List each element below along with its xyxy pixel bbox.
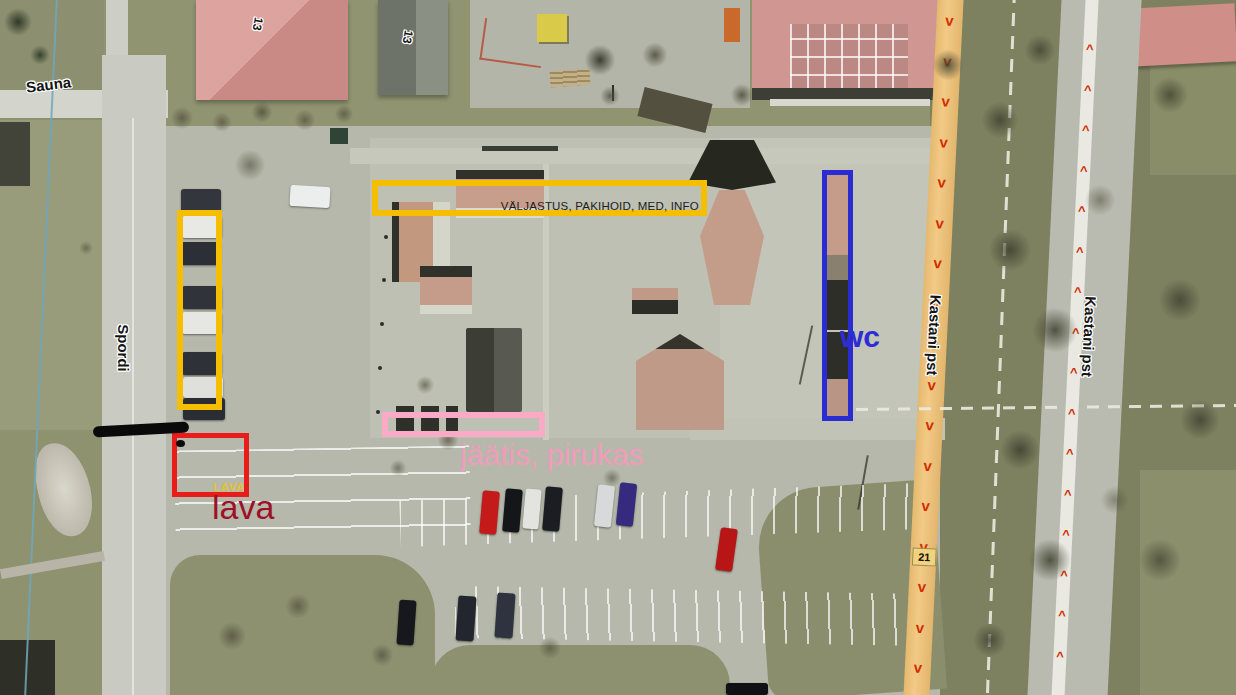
building-number-right: 13 (400, 29, 416, 45)
annotation-parking-rect (177, 210, 222, 410)
annotation-issue-label: VÄLJASTUS, PAKIHOID, MED, INFO (501, 200, 699, 212)
street-label-kastani-path: Kastani pst (924, 294, 945, 376)
annotation-food-rect (382, 412, 545, 437)
car (181, 189, 221, 212)
building-sports-hall-panels (790, 24, 908, 94)
street-label-kastani-road: Kastani pst (1079, 296, 1100, 378)
building-13-gray (378, 0, 448, 95)
building-13-pink (196, 0, 348, 100)
construction-wood-pile (549, 69, 590, 88)
post (380, 322, 384, 326)
route-marker-21: 21 (912, 547, 937, 566)
car (726, 683, 768, 695)
annotation-stage-label: lava (212, 488, 274, 527)
skate-ramp-small (420, 266, 472, 314)
annotation-wc-label: wc (840, 320, 880, 354)
construction-machine-orange (724, 8, 740, 42)
post (384, 235, 388, 239)
dumpster (330, 128, 348, 144)
grass-island-left (170, 555, 435, 695)
road-spordi-centerline (132, 118, 134, 695)
annotation-food-label: jäätis, pirukas (460, 438, 643, 472)
post (376, 410, 380, 414)
car (289, 185, 330, 208)
car (396, 599, 416, 645)
building-left-small (0, 122, 30, 186)
building-number-left: 13 (250, 16, 266, 32)
grass-right-top (1150, 55, 1236, 175)
grass-island-mid (430, 645, 730, 695)
plaza-top-path (350, 148, 940, 164)
street-label-spordi: Spordi (115, 324, 132, 372)
construction-fence-red (479, 18, 546, 68)
post (382, 278, 386, 282)
grass-right-bottom (1140, 470, 1236, 695)
car (455, 595, 476, 641)
annotation-wc-rect (822, 170, 853, 421)
parking-lines-lower-row (455, 586, 926, 646)
road-spordi (102, 55, 166, 695)
shelter (466, 328, 522, 412)
lamp-post (612, 85, 614, 101)
car (494, 592, 515, 638)
building-right-top (1127, 3, 1236, 67)
annotation-issue-rect: VÄLJASTUS, PAKIHOID, MED, INFO (372, 180, 707, 216)
skate-rail (482, 146, 558, 151)
skate-box (632, 288, 678, 314)
plaza-exit-path (690, 418, 945, 440)
marker-black-dot (176, 440, 185, 447)
building-sports-hall-walk (770, 99, 930, 106)
annotated-aerial-map: v v v v v v v v v v v v v v v v v Kastan… (0, 0, 1236, 695)
post (378, 366, 382, 370)
